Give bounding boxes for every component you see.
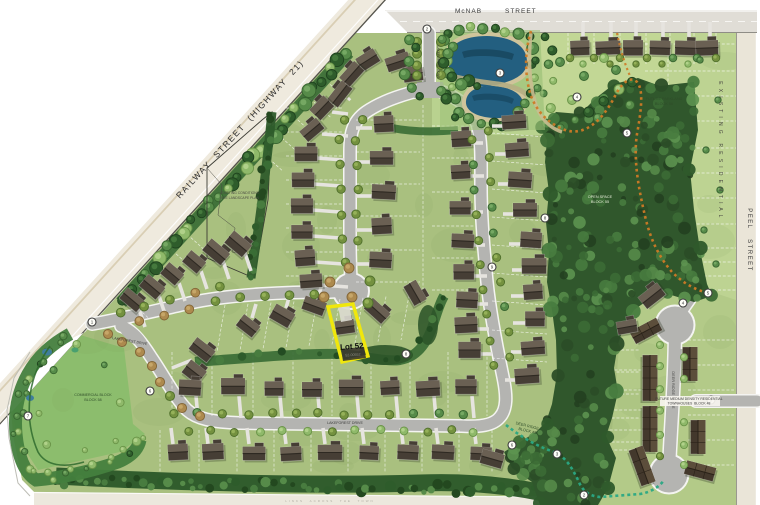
svg-text:COMMERCIAL BLOCK: COMMERCIAL BLOCK bbox=[74, 393, 112, 397]
svg-text:BLOCK 56: BLOCK 56 bbox=[655, 102, 673, 106]
svg-text:EXISTING CONDITIONS: EXISTING CONDITIONS bbox=[221, 191, 260, 195]
svg-text:LAKEFOREST GDNS: LAKEFOREST GDNS bbox=[436, 45, 440, 79]
svg-text:BLOCK 58: BLOCK 58 bbox=[84, 398, 101, 402]
svg-text:OPEN SPACE: OPEN SPACE bbox=[588, 195, 613, 199]
svg-text:PEEL STREET: PEEL STREET bbox=[746, 208, 752, 272]
svg-text:STREET: STREET bbox=[505, 8, 537, 15]
svg-text:LINKS ACROSS THE TOWN: LINKS ACROSS THE TOWN bbox=[285, 499, 374, 503]
svg-text:LAKEFOREST DRIVE: LAKEFOREST DRIVE bbox=[327, 421, 363, 425]
svg-text:BLOCK 55: BLOCK 55 bbox=[591, 200, 609, 204]
svg-text:FUTURE MEDIUM DENSITY RESIDENT: FUTURE MEDIUM DENSITY RESIDENTIAL bbox=[655, 397, 722, 401]
svg-text:McNAB: McNAB bbox=[455, 8, 482, 15]
svg-text:FUTURE PARKLAND: FUTURE PARKLAND bbox=[646, 97, 683, 101]
svg-text:Lot 52: Lot 52 bbox=[340, 341, 365, 352]
svg-text:E X I S T I N G R E S I D E: E X I S T I N G R E S I D E N T I A L bbox=[717, 81, 723, 219]
svg-text:SEE LANDSCAPE PLAN: SEE LANDSCAPE PLAN bbox=[221, 196, 260, 200]
svg-text:TOWNHOUSES BLOCK 48: TOWNHOUSES BLOCK 48 bbox=[668, 402, 711, 406]
